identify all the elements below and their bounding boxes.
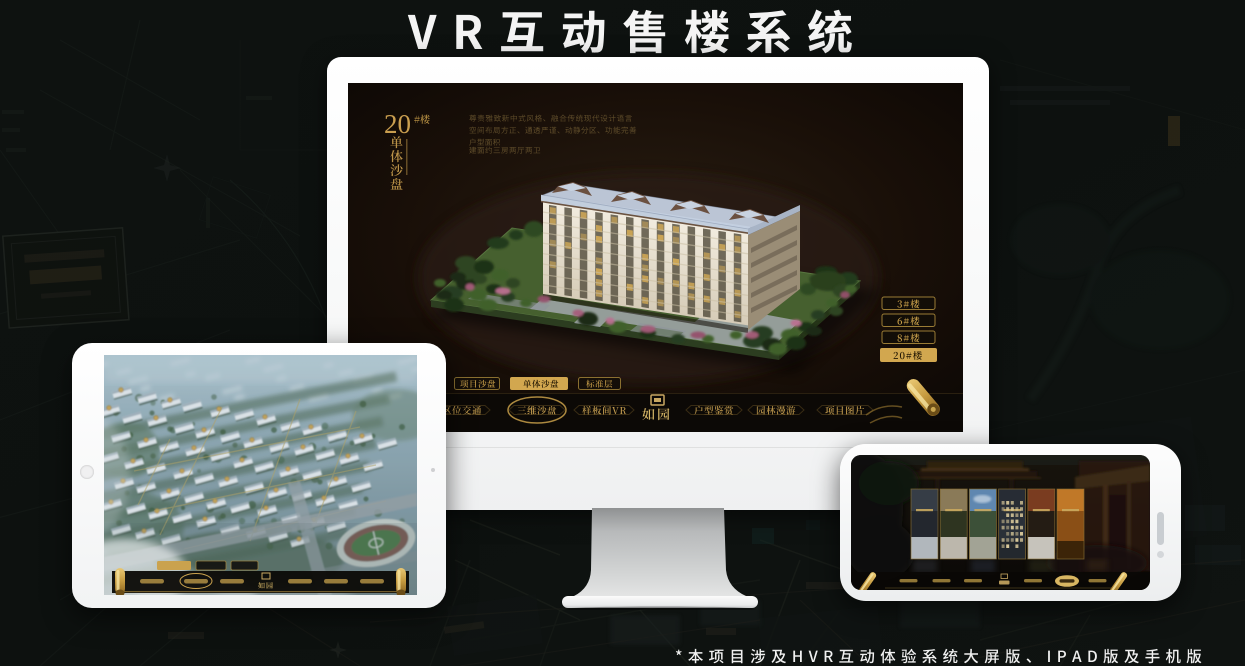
- svg-text:20: 20: [384, 109, 411, 139]
